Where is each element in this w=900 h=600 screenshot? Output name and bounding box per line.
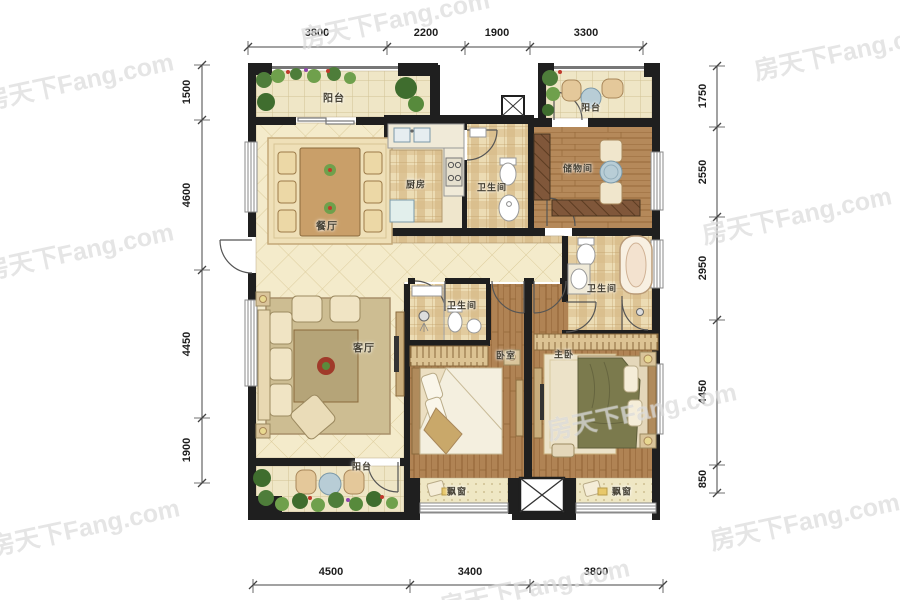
dim-top-3: 1900 — [485, 27, 509, 39]
floor-plan-page: 3800 2200 1900 3300 1500 4600 4450 1900 … — [0, 0, 900, 600]
entry-door — [220, 240, 252, 273]
pillow — [628, 400, 642, 426]
sink-icon — [571, 269, 587, 289]
fridge — [390, 200, 414, 222]
dim-right-3: 2950 — [697, 256, 709, 280]
wicker-chair — [344, 470, 364, 494]
sink-right — [414, 128, 430, 142]
label-balcony-tl: 阳台 — [323, 90, 345, 105]
wicker-chair — [602, 79, 623, 98]
window-storage-right — [651, 152, 663, 210]
label-balcony-bl: 阳台 — [352, 460, 372, 473]
dim-right-1: 1750 — [697, 84, 709, 108]
dim-top-1: 3800 — [305, 27, 329, 39]
label-bath-top: 卫生间 — [477, 181, 507, 194]
dim-left-4: 1900 — [181, 438, 193, 462]
bed-headboard — [648, 360, 656, 444]
shower-head — [637, 309, 644, 316]
dim-bottom-1: 4500 — [319, 566, 343, 578]
toilet-icon — [577, 244, 595, 266]
round-table — [600, 161, 622, 183]
sofa-seat — [270, 312, 292, 344]
bedroom-entry-floor — [488, 284, 524, 346]
chair — [600, 182, 622, 204]
sofa-back — [258, 310, 270, 420]
dim-top-2: 2200 — [414, 27, 438, 39]
wardrobe — [410, 346, 488, 366]
wardrobe — [534, 334, 658, 350]
dim-left-3: 4450 — [181, 332, 193, 356]
dim-right-2: 2550 — [697, 160, 709, 184]
storage-cabinet-bottom — [552, 200, 640, 216]
tv — [540, 384, 544, 420]
dim-top-4: 3300 — [574, 27, 598, 39]
wicker-chair — [296, 470, 316, 494]
label-bay-left: 飘窗 — [447, 485, 467, 498]
chair — [600, 140, 622, 162]
dim-bottom-2: 3400 — [458, 566, 482, 578]
wicker-chair — [562, 80, 581, 101]
armchair — [292, 296, 322, 322]
window-dining-left — [245, 142, 257, 212]
toilet-icon — [448, 312, 462, 332]
window-living-left — [245, 300, 257, 386]
shower-head — [419, 311, 429, 321]
living-set — [256, 292, 404, 441]
window-bay-right — [576, 503, 656, 513]
dim-left-2: 4600 — [181, 183, 193, 207]
dim-left-1: 1500 — [181, 80, 193, 104]
label-master: 主卧 — [554, 348, 574, 361]
armchair — [330, 296, 360, 322]
tv-cabinet — [516, 380, 523, 436]
bed-headboard — [412, 368, 420, 454]
label-bay-right: 飘窗 — [612, 485, 632, 498]
sink-icon — [467, 319, 481, 333]
label-bedroom: 卧室 — [496, 349, 516, 362]
stove — [446, 158, 462, 186]
sink-left — [394, 128, 410, 142]
label-bath-mid: 卫生间 — [447, 299, 477, 312]
dim-right-4: 4450 — [697, 380, 709, 404]
window-bay-left — [420, 503, 508, 513]
tv — [394, 336, 399, 372]
label-living: 客厅 — [353, 340, 375, 355]
round-table — [319, 473, 341, 495]
label-storage: 储物间 — [563, 162, 593, 175]
sofa-seat — [270, 384, 292, 416]
label-balcony-tr: 阳台 — [581, 101, 601, 114]
pillow — [624, 366, 638, 392]
bench — [552, 444, 574, 457]
dim-bottom-3: 3800 — [584, 566, 608, 578]
storage-cabinet-left — [534, 134, 550, 200]
sofa-seat — [270, 348, 292, 380]
label-kitchen: 厨房 — [406, 178, 426, 191]
dim-right-5: 850 — [697, 470, 709, 488]
hallway-border-strip — [388, 236, 564, 243]
sink-icon — [499, 195, 519, 221]
label-dining: 餐厅 — [316, 218, 338, 233]
window-bath-right — [651, 240, 663, 288]
label-bath-right: 卫生间 — [587, 282, 617, 295]
